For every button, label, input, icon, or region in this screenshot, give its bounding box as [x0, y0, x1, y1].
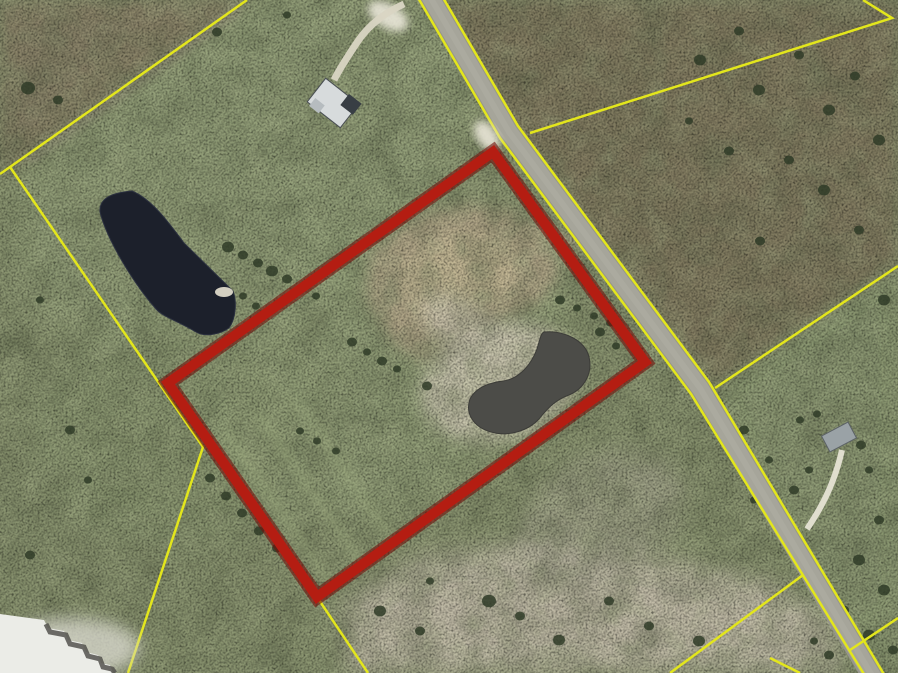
tree	[685, 117, 693, 124]
tree	[332, 447, 340, 454]
tree	[426, 577, 434, 584]
tree	[878, 295, 890, 306]
tree	[590, 312, 598, 319]
aerial-map-container	[0, 0, 898, 673]
tree	[604, 597, 614, 606]
tree	[874, 516, 884, 525]
tree	[810, 637, 818, 644]
tree	[36, 296, 44, 303]
tree	[239, 292, 247, 299]
tree	[282, 275, 292, 284]
tree	[813, 410, 821, 417]
tree	[734, 27, 744, 36]
tree	[823, 105, 835, 116]
tree	[222, 242, 234, 253]
tree	[238, 251, 248, 260]
tree	[595, 328, 605, 337]
tree	[694, 55, 706, 66]
tree	[393, 365, 401, 372]
tree	[21, 82, 35, 95]
tree	[865, 466, 873, 473]
tree	[65, 426, 75, 435]
tree	[313, 437, 321, 444]
tree	[84, 476, 92, 483]
tree	[253, 259, 263, 268]
tree	[377, 357, 387, 366]
terrain-speckle	[0, 0, 898, 673]
tree	[878, 585, 890, 596]
pond-left-beach-spot	[215, 287, 233, 297]
aerial-map	[0, 0, 898, 673]
tree	[824, 651, 834, 660]
tree	[283, 11, 291, 18]
tree	[482, 595, 496, 608]
tree	[789, 486, 799, 495]
tree	[296, 427, 304, 434]
tree	[724, 147, 734, 156]
tree	[266, 266, 278, 277]
tree	[765, 456, 773, 463]
tree	[312, 292, 320, 299]
tree	[818, 185, 830, 196]
tree	[363, 348, 371, 355]
tree	[644, 622, 654, 631]
tree	[888, 646, 898, 655]
tree	[53, 96, 63, 105]
tree	[252, 302, 260, 309]
tree	[753, 85, 765, 96]
tree	[212, 28, 222, 37]
tree	[347, 338, 357, 347]
tree	[794, 51, 804, 60]
tree	[573, 304, 581, 311]
tree	[422, 382, 432, 391]
tree	[374, 606, 386, 617]
tree	[755, 237, 765, 246]
tree	[25, 551, 35, 560]
tree	[856, 441, 866, 450]
tree	[553, 635, 565, 646]
tree	[873, 135, 885, 146]
tree	[205, 474, 215, 483]
tree	[853, 555, 865, 566]
tree	[612, 342, 620, 349]
tree	[415, 627, 425, 636]
tree	[221, 492, 231, 501]
tree	[693, 636, 705, 647]
tree	[796, 416, 804, 423]
tree	[515, 612, 525, 621]
tree	[237, 509, 247, 518]
tree	[854, 226, 864, 235]
tree	[555, 296, 565, 305]
tree	[850, 72, 860, 81]
tree	[784, 156, 794, 165]
tree	[805, 466, 813, 473]
